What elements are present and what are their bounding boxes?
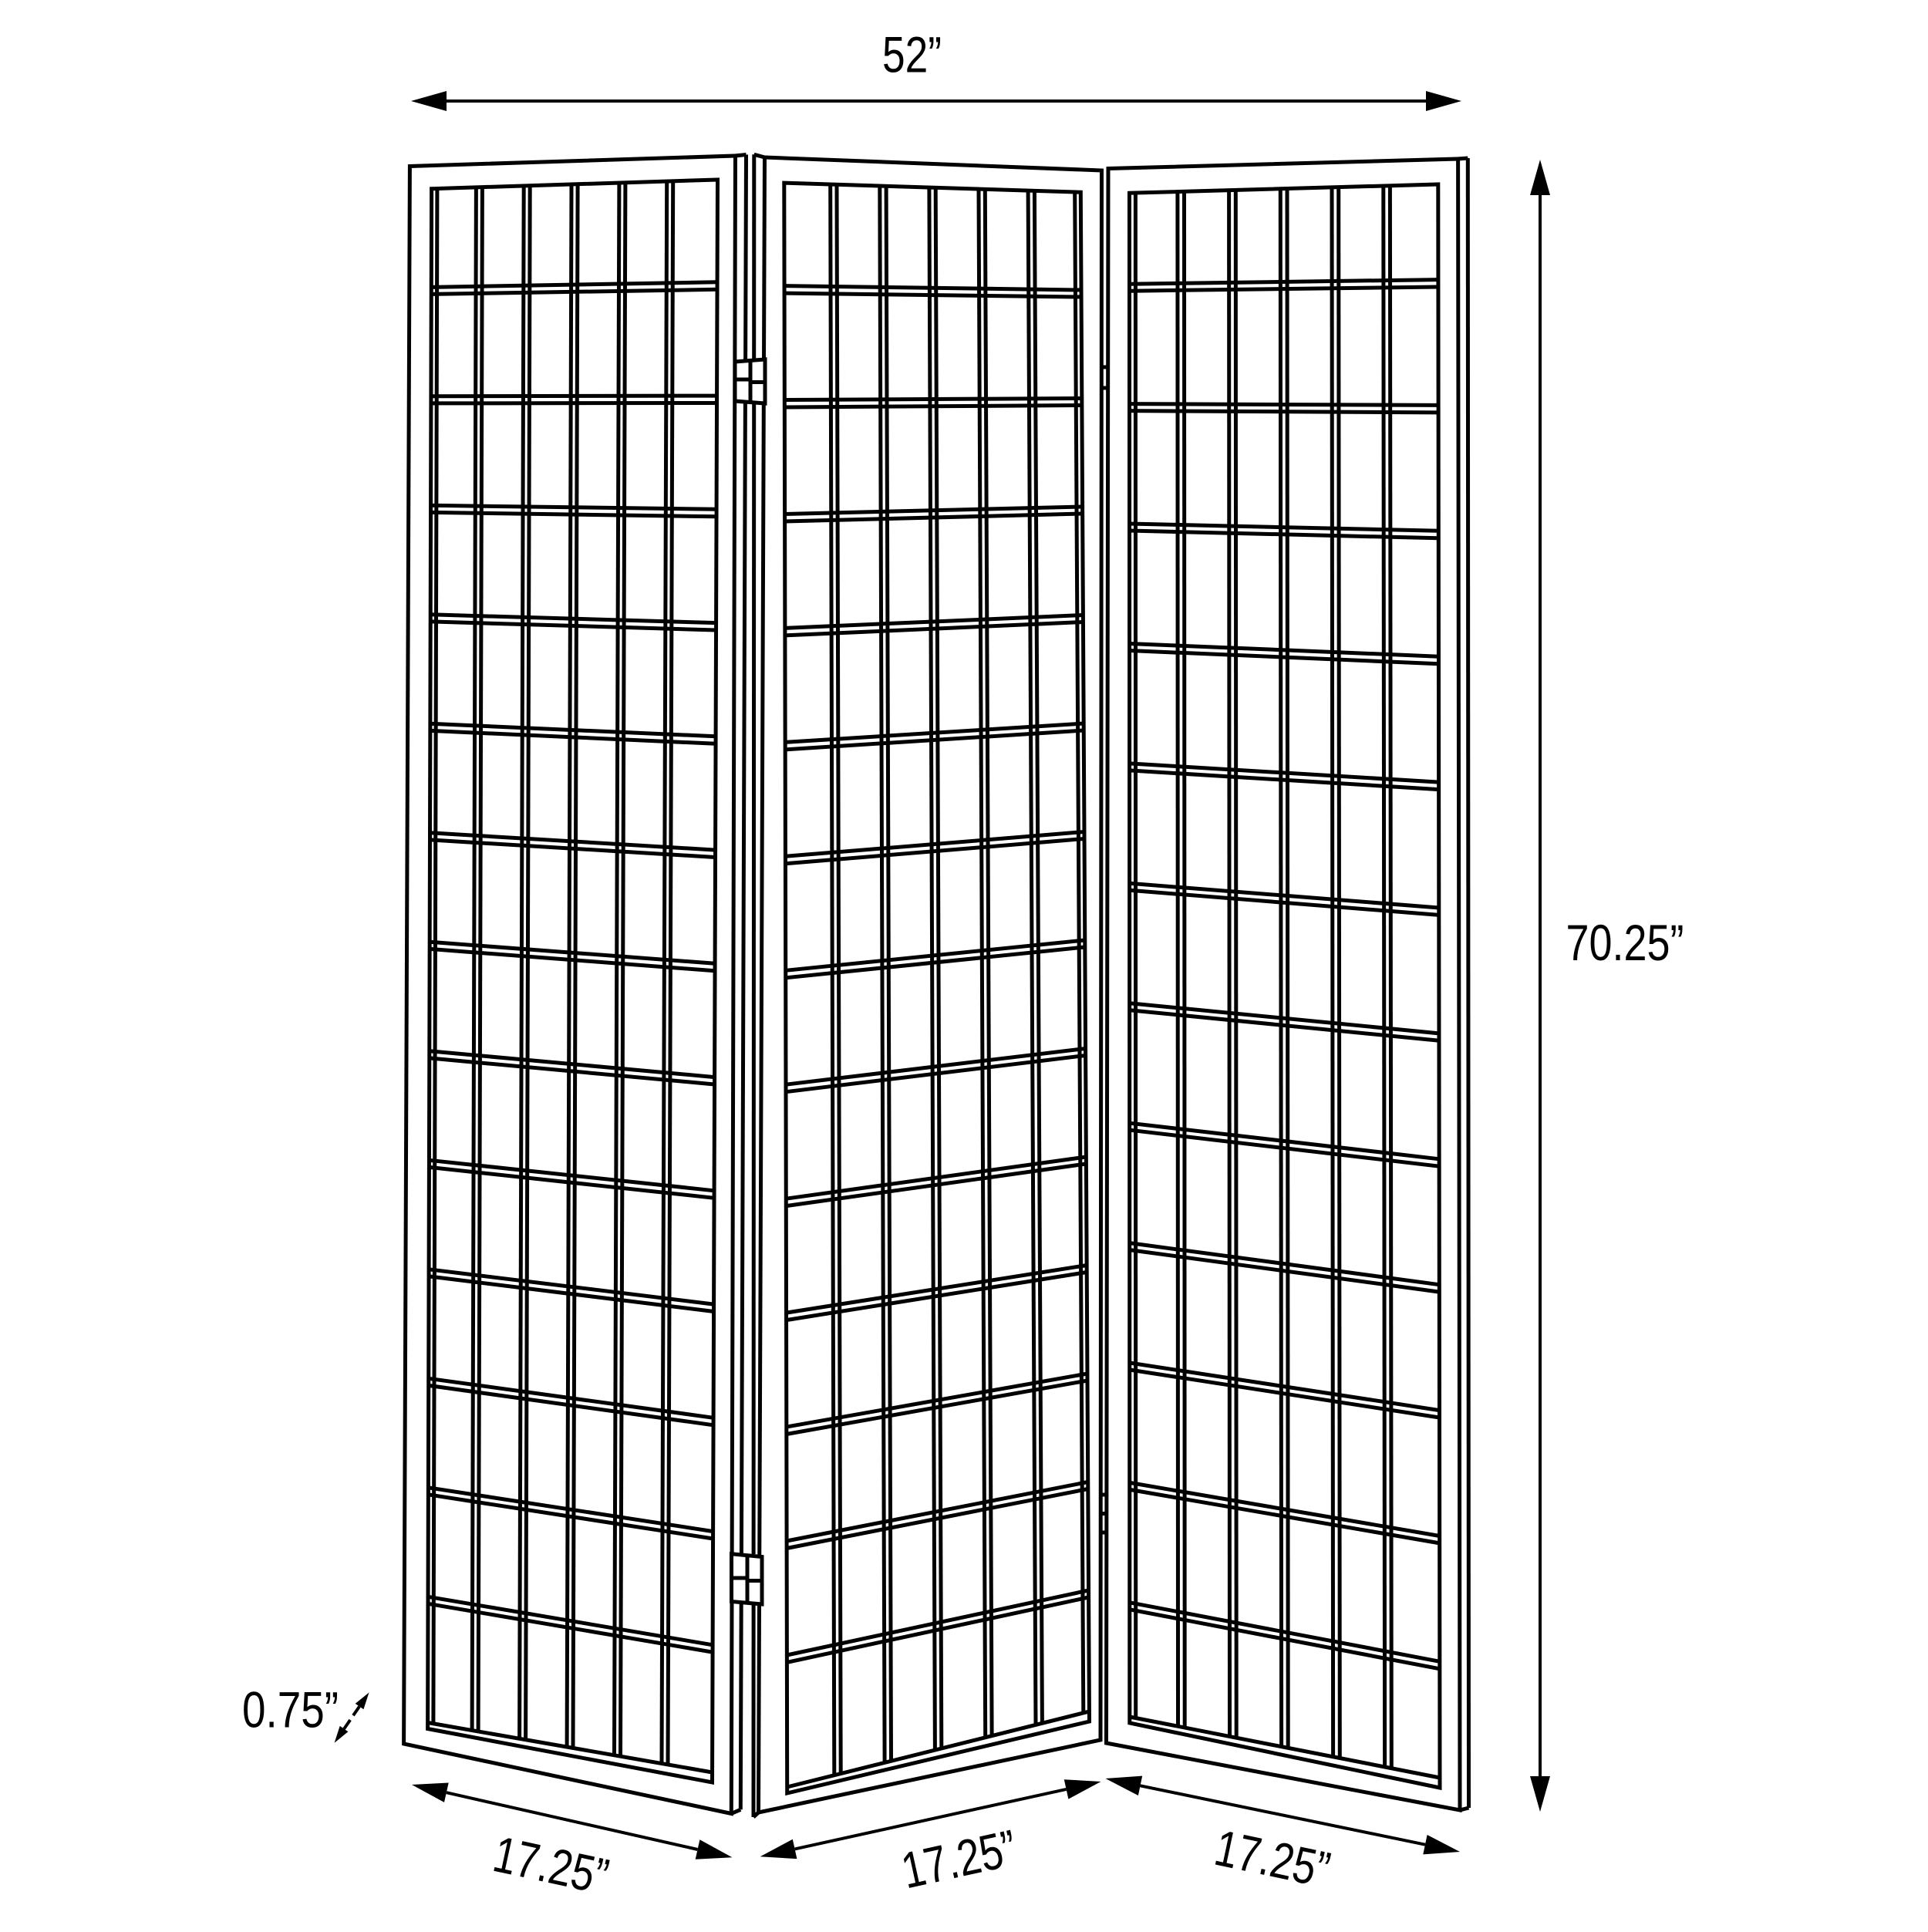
svg-text:70.25”: 70.25” <box>1566 914 1684 971</box>
svg-text:52”: 52” <box>882 26 942 83</box>
svg-text:0.75”: 0.75” <box>242 1681 339 1738</box>
